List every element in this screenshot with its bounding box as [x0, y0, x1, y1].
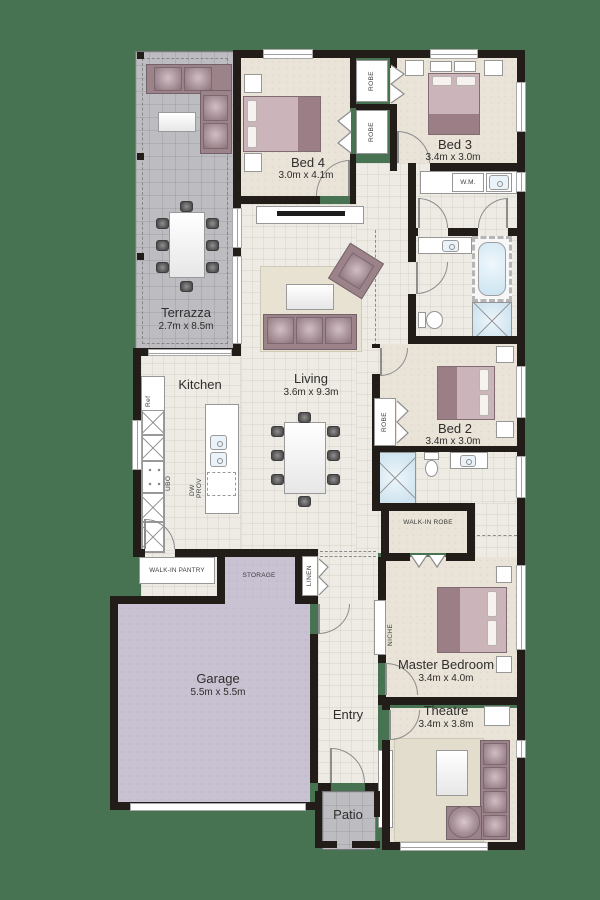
window [516, 565, 526, 650]
wall [133, 549, 145, 557]
door-leaf [397, 131, 399, 163]
door-leaf [380, 348, 382, 376]
theatre-dims: 3.4m x 3.8m [418, 719, 473, 730]
pillow [479, 394, 489, 416]
bifold-door-icon [318, 558, 330, 596]
bifold-door-icon [336, 110, 352, 154]
bedside-table [244, 153, 262, 172]
ref-label: Ref [146, 381, 153, 407]
dining-chair [298, 412, 311, 423]
outdoor-chair [206, 218, 219, 229]
bed4-dims: 3.0m x 4.1m [278, 170, 333, 181]
pillow [456, 76, 476, 86]
storage-label: STORAGE [242, 572, 275, 579]
theatre-sofa-cushion [483, 791, 507, 813]
wall [408, 236, 416, 262]
tv-icon [277, 211, 345, 216]
wall [315, 791, 322, 841]
theatre-sofa-cushion [483, 743, 507, 765]
window [430, 49, 478, 59]
kitchen-cabinet [142, 493, 164, 522]
entry-ceiling-line2 [320, 556, 376, 557]
wir-side-floor [475, 503, 517, 557]
wall [365, 783, 378, 791]
outdoor-sofa-cushion [184, 67, 212, 91]
window [263, 49, 313, 59]
outdoor-chair [180, 281, 193, 292]
patio-label: Patio [333, 808, 363, 822]
walk-in-robe-label: WALK-IN ROBE [404, 518, 452, 527]
wall [318, 783, 331, 791]
dining-chair [327, 426, 340, 437]
window [400, 842, 488, 851]
wall [233, 196, 320, 204]
bedside-table [496, 421, 514, 438]
living-hall-line [375, 230, 376, 346]
bifold-door-icon [390, 64, 406, 104]
bed2-dims: 3.4m x 3.0m [425, 436, 480, 447]
wall [295, 596, 318, 604]
terrazza-post [137, 153, 144, 160]
door-leaf [416, 262, 418, 294]
wall [408, 163, 416, 236]
door-leaf [385, 663, 387, 695]
sliding-glass-door [148, 349, 232, 356]
wall [430, 163, 517, 171]
dining-chair [327, 474, 340, 485]
window [516, 82, 526, 132]
window [516, 366, 526, 418]
bifold-door-icon [396, 400, 410, 444]
theatre-ottoman-icon [448, 806, 480, 838]
outdoor-chair [156, 262, 169, 273]
outdoor-sofa-cushion [154, 67, 182, 91]
wall [508, 228, 517, 236]
bed4-label: Bed 4 [291, 156, 325, 170]
wall [517, 50, 525, 850]
window [516, 172, 526, 192]
entry-label: Entry [333, 708, 363, 722]
dining-chair [271, 450, 284, 461]
robe-closet: ROBE [356, 60, 388, 102]
bedhead-cushion [430, 61, 452, 72]
door-leaf [389, 710, 391, 740]
garage-label: Garage [196, 672, 239, 686]
outdoor-chair [156, 240, 169, 251]
bed3-dims: 3.4m x 3.0m [425, 152, 480, 163]
master-bedroom-label: Master Bedroom [398, 658, 494, 672]
pillow [247, 100, 257, 122]
wir-ceiling-line [477, 535, 517, 536]
wall [390, 104, 397, 171]
garage-floor [118, 604, 310, 802]
wall [372, 344, 380, 348]
wall [408, 228, 418, 236]
garage-dims: 5.5m x 5.5m [190, 687, 245, 698]
pillow [487, 591, 497, 617]
outdoor-chair [206, 262, 219, 273]
terrazza-post [137, 52, 144, 59]
terrazza-dims: 2.7m x 8.5m [158, 321, 213, 332]
theatre-cabinet [484, 706, 510, 726]
wall [448, 228, 478, 236]
sofa-cushion [325, 317, 352, 344]
bedside-table [496, 566, 512, 583]
island-sink-icon [210, 435, 227, 450]
pillow [247, 126, 257, 148]
dining-chair [327, 450, 340, 461]
sliding-glass-door [232, 256, 242, 344]
bedhead-cushion [454, 61, 476, 72]
double-door-icon [410, 554, 446, 569]
wall [408, 336, 517, 344]
bed2-label: Bed 2 [438, 422, 472, 436]
wall [233, 58, 241, 204]
door-leaf [144, 519, 146, 549]
entry-ceiling-line [320, 551, 376, 552]
toilet-icon [426, 311, 443, 329]
door-leaf [418, 198, 420, 228]
toilet-tank [418, 312, 426, 328]
pillow [479, 369, 489, 391]
wall [315, 841, 337, 848]
kitchen-cabinet [142, 410, 164, 435]
cooktop-icon [142, 461, 164, 493]
pillow [487, 620, 497, 646]
island-sink-icon [210, 452, 227, 467]
kitchen-label: Kitchen [178, 378, 221, 392]
coffee-table [286, 284, 334, 310]
theatre-sofa-cushion [483, 767, 507, 789]
door-leaf [348, 160, 350, 196]
sofa-cushion [267, 317, 294, 344]
ensuite-toilet-icon [425, 460, 438, 477]
laundry-tub-basin [489, 175, 509, 190]
wall [390, 163, 397, 171]
bath-sink-icon [442, 240, 459, 252]
walk-in-pantry-box: WALK-IN PANTRY [139, 557, 215, 584]
outdoor-chair [156, 218, 169, 229]
outdoor-chair [206, 240, 219, 251]
living-label: Living [294, 372, 328, 386]
wall [118, 596, 217, 604]
theatre-label: Theatre [424, 704, 469, 718]
garage-door [130, 803, 306, 811]
dishwasher-provision [207, 472, 236, 496]
bathtub-basin [478, 242, 506, 296]
wall [374, 791, 380, 817]
theatre-coffee-table [436, 750, 468, 796]
outdoor-dining-table [169, 212, 205, 278]
theatre-sofa-cushion [483, 815, 507, 837]
pillow [432, 76, 452, 86]
floor-plan: W.M. [0, 0, 600, 900]
door-leaf [506, 198, 508, 228]
bedside-table [496, 346, 514, 363]
dining-chair [271, 474, 284, 485]
bed2-robe-closet: ROBE [374, 398, 396, 446]
dining-table [284, 422, 326, 494]
niche-label: NICHE [388, 610, 395, 646]
shower-icon [472, 302, 512, 340]
window [516, 740, 526, 758]
washing-machine-icon: W.M. [452, 173, 484, 192]
dining-chair [298, 496, 311, 507]
wall [217, 549, 225, 604]
wall [310, 634, 318, 783]
wall [110, 596, 118, 810]
window [132, 420, 142, 470]
ubo-label: UBO [166, 463, 173, 491]
wall [350, 154, 356, 204]
ensuite-sink-icon [460, 455, 476, 467]
bedside-table [244, 74, 262, 93]
door-leaf [318, 604, 320, 634]
master-bedroom-dims: 3.4m x 4.0m [418, 673, 473, 684]
prov-label: PROV [197, 466, 204, 498]
ensuite-toilet-tank [424, 452, 439, 460]
bedside-table [496, 656, 512, 673]
window [516, 456, 526, 498]
terrazza-label: Terrazza [161, 306, 211, 320]
dining-chair [271, 426, 284, 437]
living-dims: 3.6m x 9.3m [283, 387, 338, 398]
outdoor-sofa-cushion [203, 123, 228, 149]
bedside-table [405, 60, 424, 76]
wall [446, 553, 475, 561]
wall [408, 294, 416, 340]
niche-recess [374, 600, 386, 655]
outdoor-sofa-cushion [203, 95, 228, 121]
front-door-leaf [330, 748, 332, 783]
linen-closet: LINEN [302, 556, 318, 596]
wall [352, 841, 380, 848]
sliding-glass-door [232, 208, 242, 248]
outdoor-coffee-table [158, 112, 196, 132]
kitchen-cabinet [142, 435, 164, 461]
bed3-label: Bed 3 [438, 138, 472, 152]
ensuite-shower-icon [374, 452, 416, 504]
robe-closet: ROBE [356, 110, 388, 154]
sofa-cushion [296, 317, 323, 344]
outdoor-chair [180, 201, 193, 212]
terrazza-post [137, 253, 144, 260]
wall [382, 740, 390, 850]
bedside-table [484, 60, 503, 76]
